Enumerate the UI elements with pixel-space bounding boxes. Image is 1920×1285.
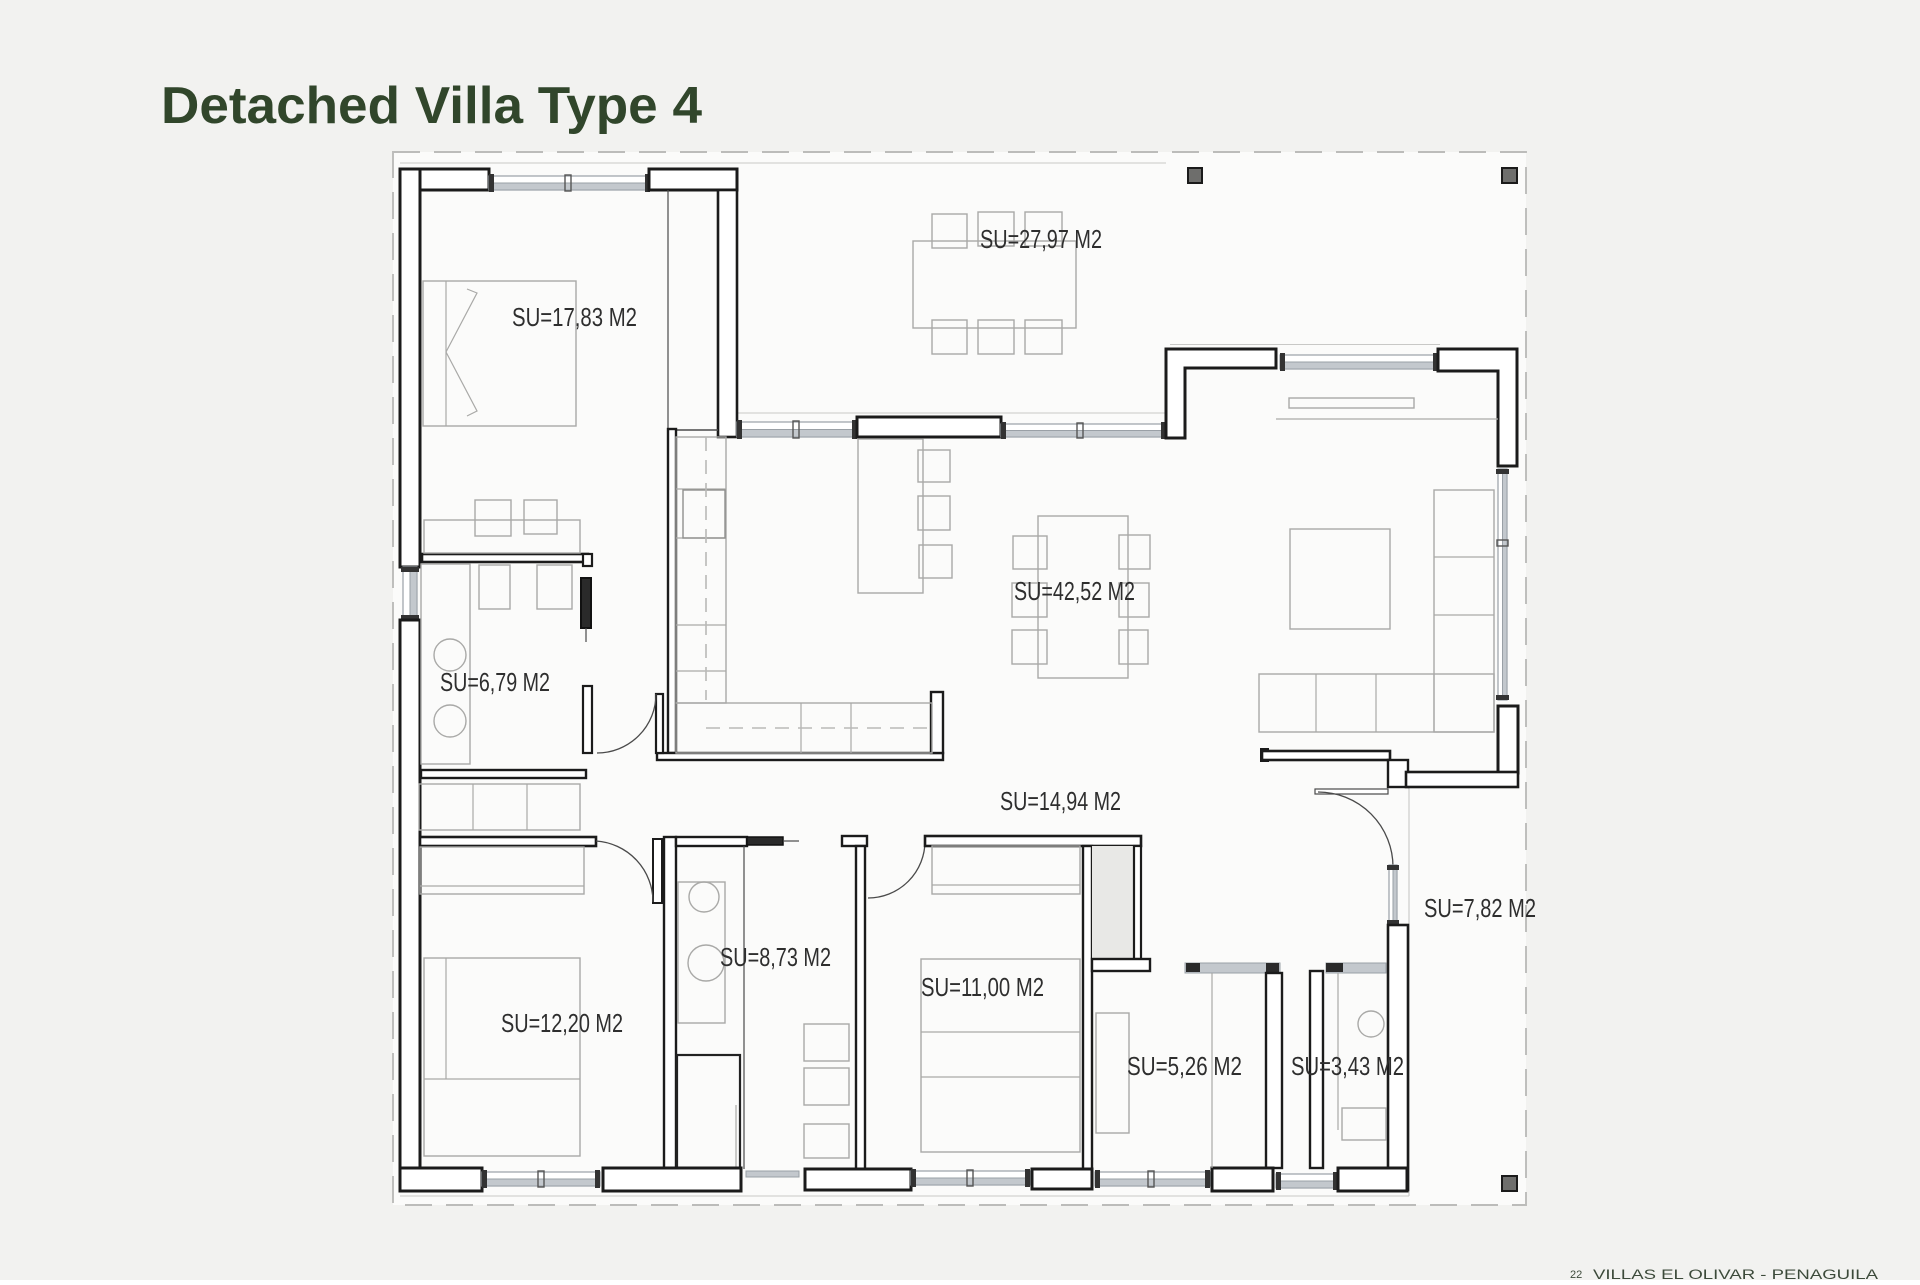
svg-text:SU=17,83 M2: SU=17,83 M2 — [512, 302, 637, 332]
svg-text:SU=3,43 M2: SU=3,43 M2 — [1291, 1051, 1404, 1081]
svg-text:SU=8,73 M2: SU=8,73 M2 — [720, 942, 831, 972]
svg-text:SU=42,52 M2: SU=42,52 M2 — [1014, 576, 1135, 606]
svg-text:SU=6,79 M2: SU=6,79 M2 — [440, 667, 550, 697]
svg-text:SU=12,20 M2: SU=12,20 M2 — [501, 1008, 623, 1038]
svg-text:22: 22 — [1570, 1269, 1582, 1280]
svg-text:SU=14,94 M2: SU=14,94 M2 — [1000, 786, 1121, 816]
svg-text:SU=7,82 M2: SU=7,82 M2 — [1424, 893, 1536, 923]
svg-text:SU=27,97 M2: SU=27,97 M2 — [980, 224, 1102, 254]
svg-text:VILLAS EL OLIVAR - PENAGUILA: VILLAS EL OLIVAR - PENAGUILA — [1593, 1267, 1878, 1280]
svg-text:SU=11,00 M2: SU=11,00 M2 — [921, 972, 1044, 1002]
svg-text:SU=5,26 M2: SU=5,26 M2 — [1127, 1051, 1242, 1081]
svg-text:Detached Villa Type 4: Detached Villa Type 4 — [161, 77, 702, 135]
